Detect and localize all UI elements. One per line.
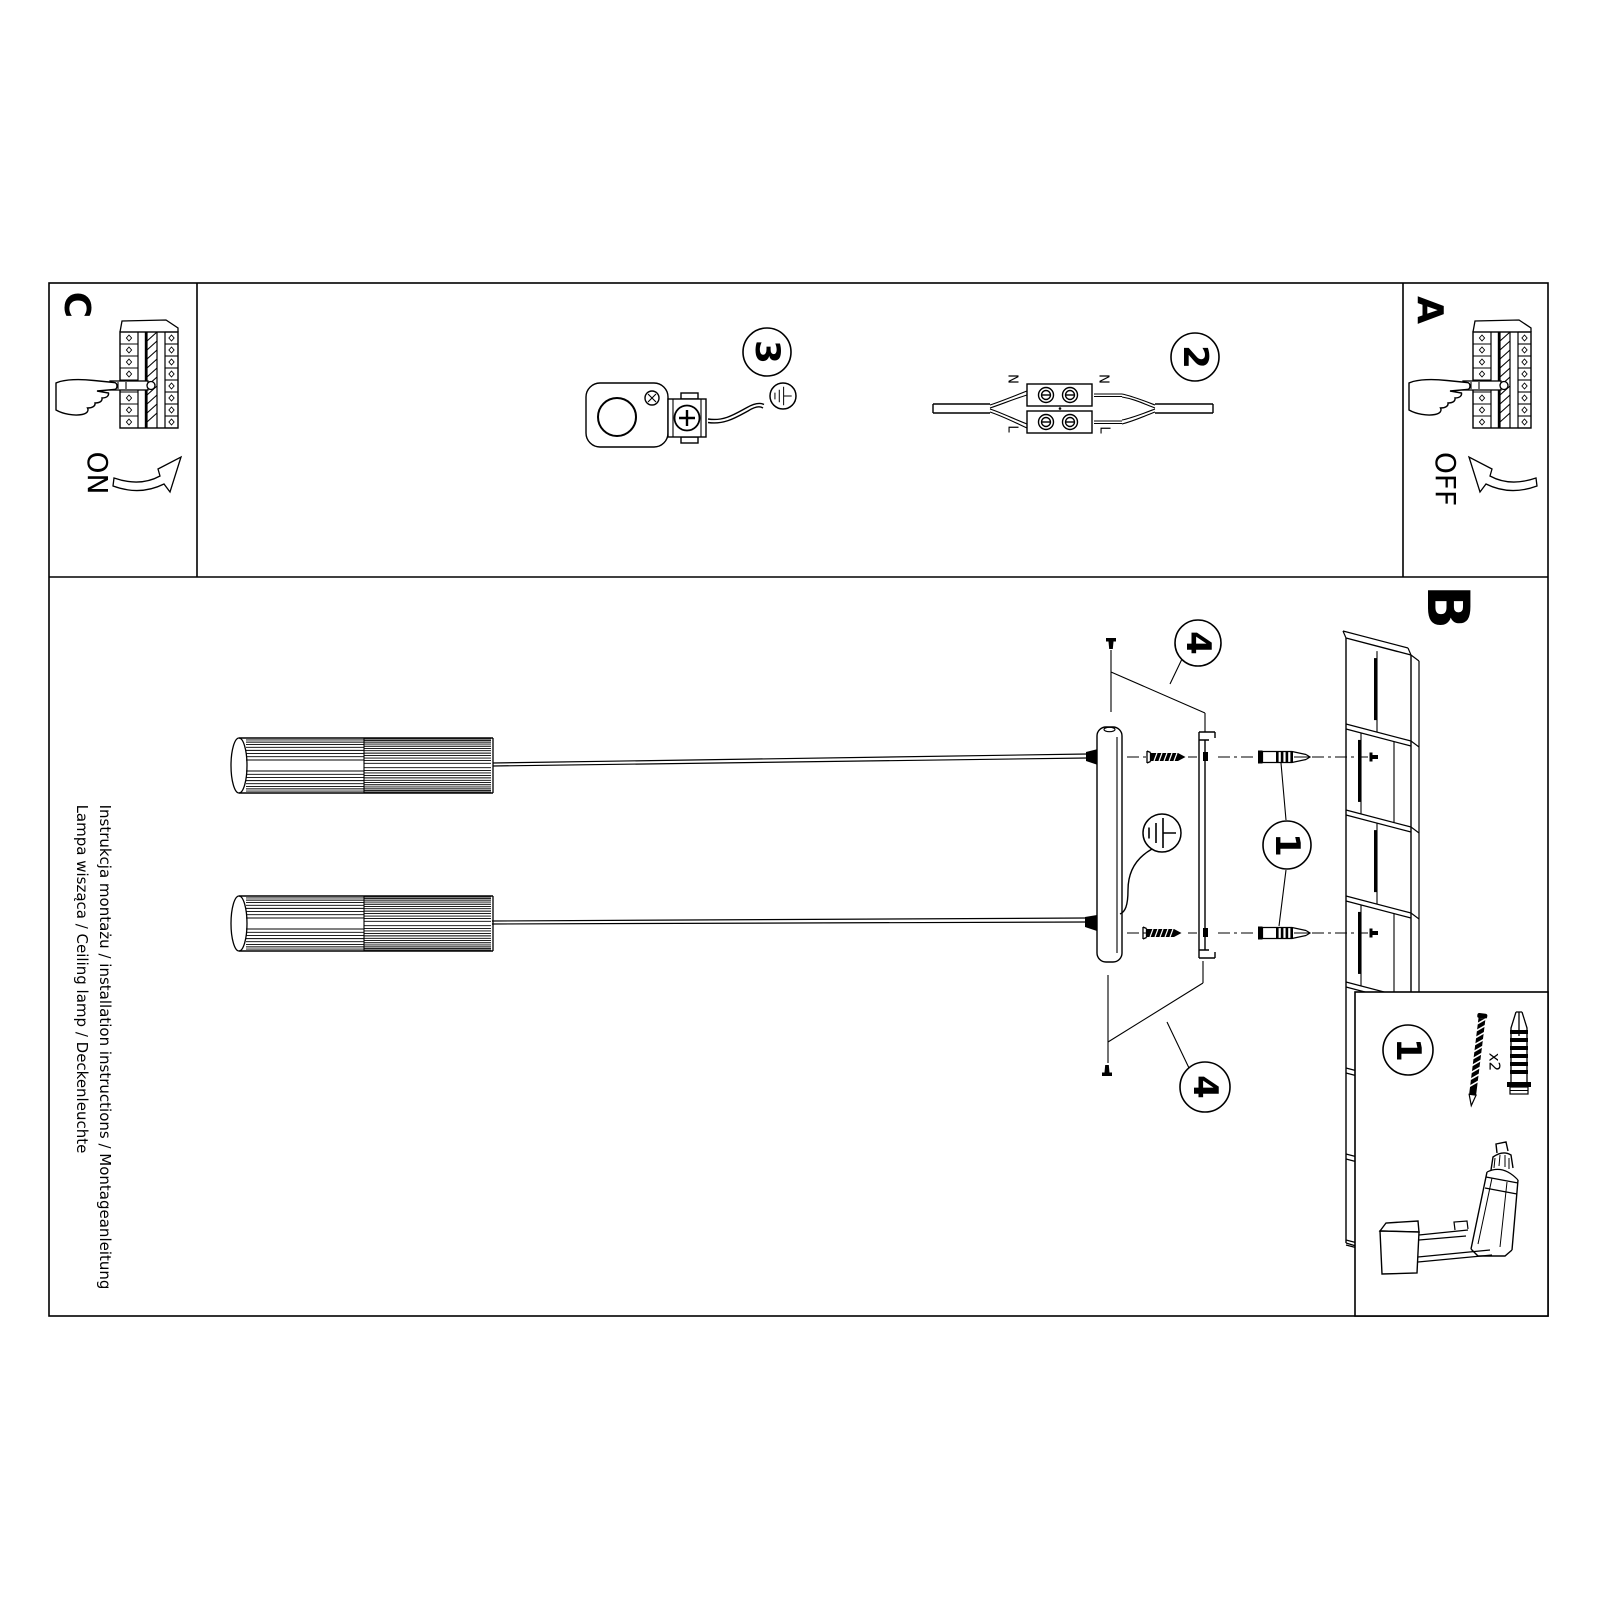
margin-note: Instrukcja montażu / installation instru… bbox=[70, 805, 116, 1290]
pendant-shade-2 bbox=[231, 896, 493, 951]
diagram-art bbox=[0, 0, 1600, 1600]
screw-icon bbox=[1143, 927, 1182, 939]
end-screw-icon bbox=[1102, 1065, 1112, 1076]
step-4-badge-top: 4 bbox=[1181, 631, 1215, 655]
wall-plug-icon bbox=[1258, 927, 1310, 940]
parts-badge: 1 bbox=[1391, 1038, 1425, 1062]
ground-symbol-circle bbox=[770, 383, 796, 409]
terminal-block-illustration bbox=[933, 384, 1213, 433]
leader-lines bbox=[1108, 650, 1286, 1068]
wire-neutral-label-left: N bbox=[1006, 374, 1019, 384]
fusebox-illustration-on bbox=[110, 320, 178, 428]
product-title: Lampa wisząca / Ceiling lamp / Deckenleu… bbox=[70, 805, 93, 1290]
fusebox-illustration-off bbox=[1463, 320, 1531, 428]
frame-borders bbox=[49, 283, 1548, 1316]
wall-hole-icon bbox=[1370, 753, 1379, 762]
instruction-sheet: C ON A OFF B 3 2 4 4 1 1 N L N L x2 Inst… bbox=[0, 0, 1600, 1600]
step-1-badge: 1 bbox=[1270, 833, 1304, 857]
step-2-badge: 2 bbox=[1178, 345, 1212, 369]
ground-hook-illustration bbox=[586, 383, 764, 447]
end-screw-icon bbox=[1106, 638, 1116, 649]
power-on-label: ON bbox=[83, 452, 111, 495]
canopy-illustration bbox=[492, 727, 1152, 962]
section-a-label: A bbox=[1411, 296, 1447, 324]
mounting-rail-illustration bbox=[1199, 732, 1215, 958]
wall-hole-icon bbox=[1370, 929, 1379, 938]
on-arrow-icon bbox=[113, 457, 181, 492]
wire-live-label-left: L bbox=[1006, 425, 1019, 432]
parts-box bbox=[1355, 992, 1548, 1316]
pointing-hand-icon bbox=[56, 380, 117, 415]
pointing-hand-icon bbox=[1409, 380, 1470, 415]
power-off-label: OFF bbox=[1431, 452, 1459, 506]
wire-neutral-label-right: N bbox=[1097, 374, 1110, 384]
step-3-badge: 3 bbox=[750, 340, 784, 364]
off-arrow-icon bbox=[1469, 457, 1537, 492]
step-4-badge-bottom: 4 bbox=[1188, 1075, 1222, 1099]
section-b-label: B bbox=[1419, 585, 1477, 629]
screw-icon bbox=[1147, 751, 1186, 763]
instructions-title: Instrukcja montażu / installation instru… bbox=[93, 805, 116, 1290]
wall-plug-icon bbox=[1258, 751, 1310, 764]
parts-quantity-label: x2 bbox=[1487, 1053, 1502, 1071]
pendant-shade-1 bbox=[231, 738, 493, 793]
section-c-label: C bbox=[58, 292, 94, 318]
wire-live-label-right: L bbox=[1098, 426, 1111, 433]
